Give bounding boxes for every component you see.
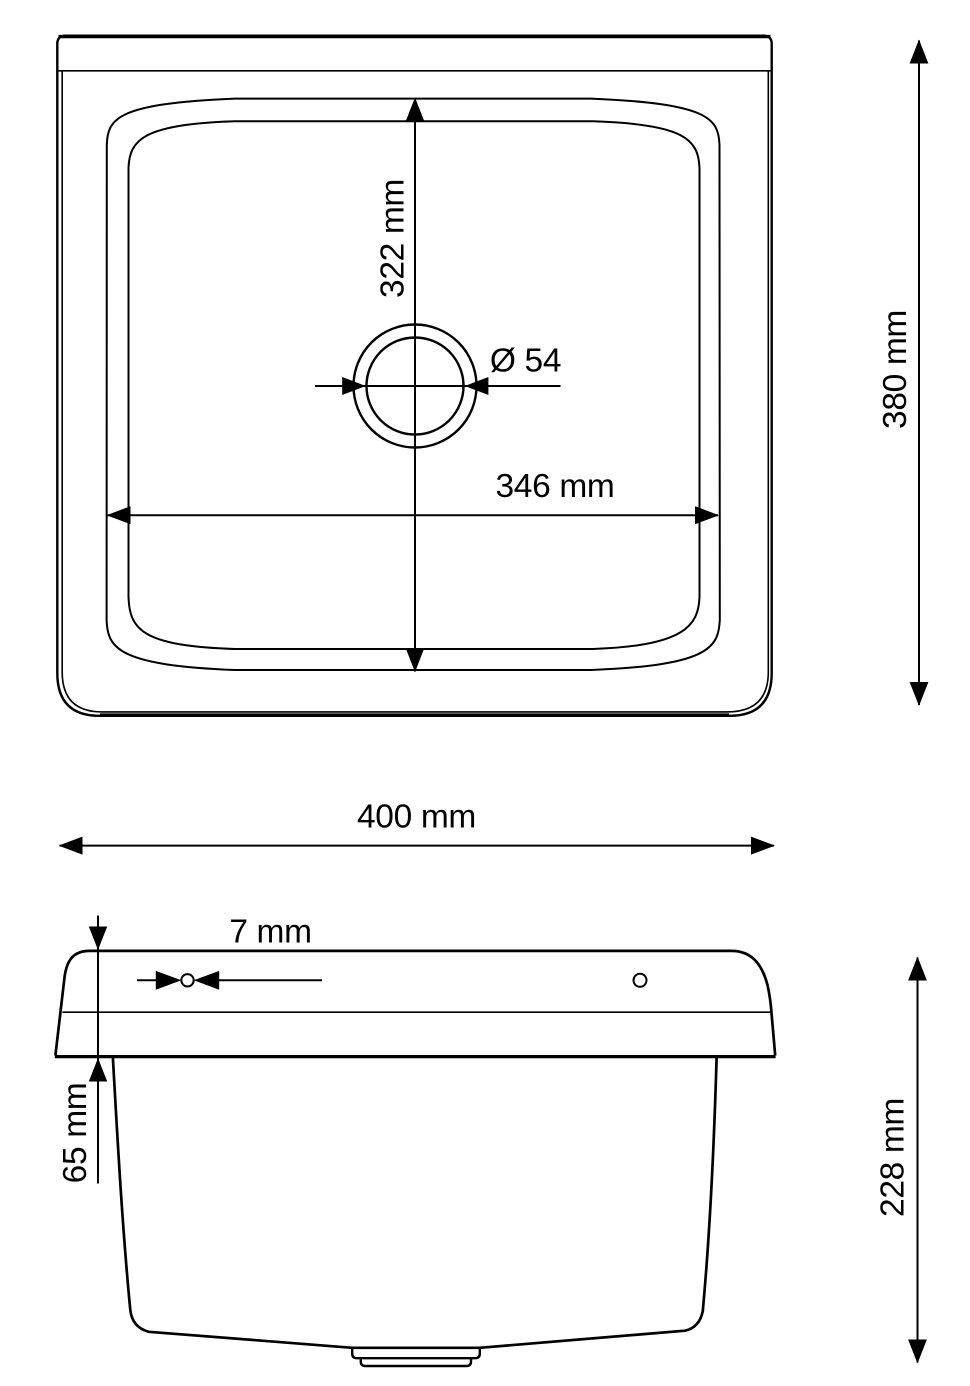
svg-text:65 mm: 65 mm bbox=[57, 1083, 94, 1184]
svg-text:228 mm: 228 mm bbox=[875, 1098, 912, 1217]
svg-text:400 mm: 400 mm bbox=[357, 799, 476, 836]
svg-text:Ø 54: Ø 54 bbox=[490, 343, 561, 380]
svg-text:7 mm: 7 mm bbox=[229, 914, 311, 951]
svg-text:322 mm: 322 mm bbox=[375, 179, 412, 298]
svg-text:346 mm: 346 mm bbox=[496, 468, 615, 505]
svg-text:380 mm: 380 mm bbox=[877, 310, 914, 429]
